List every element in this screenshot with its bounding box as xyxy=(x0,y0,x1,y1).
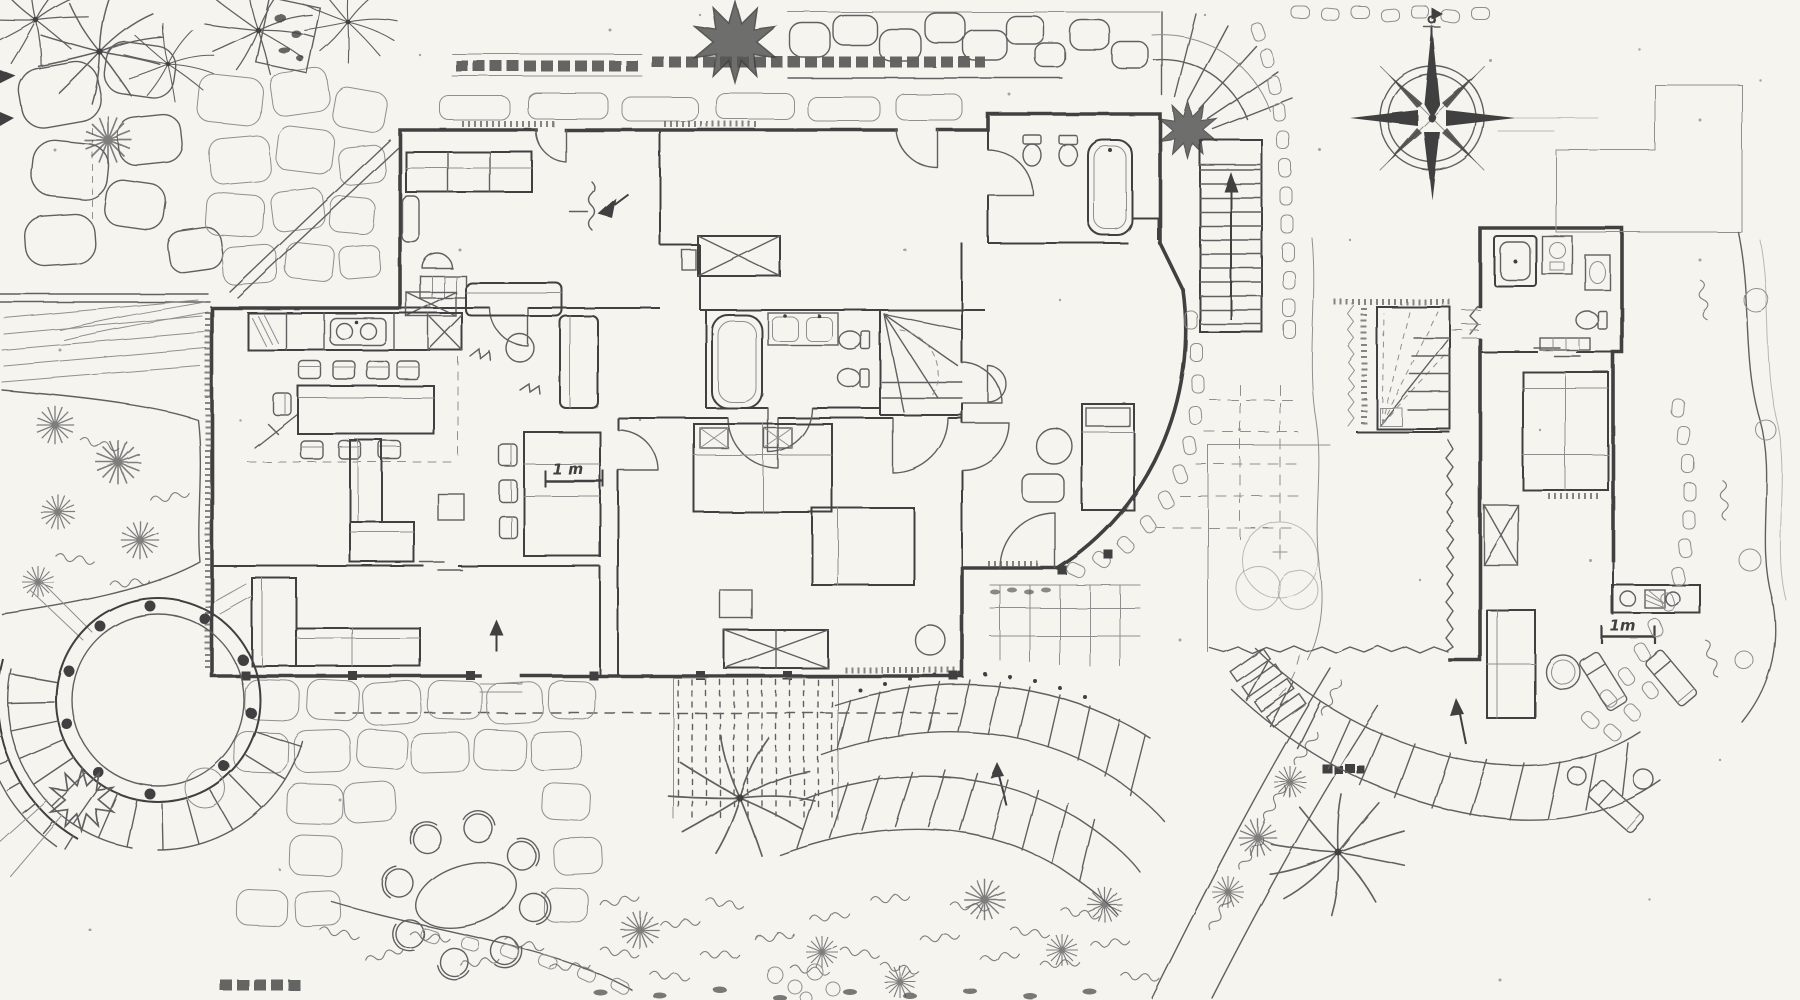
scale-label-main: 1 m xyxy=(552,460,583,478)
paper xyxy=(0,0,1800,1000)
scale-label-guest: 1m xyxy=(1610,617,1636,635)
site-plan-scan: 1 m xyxy=(0,0,1800,1000)
